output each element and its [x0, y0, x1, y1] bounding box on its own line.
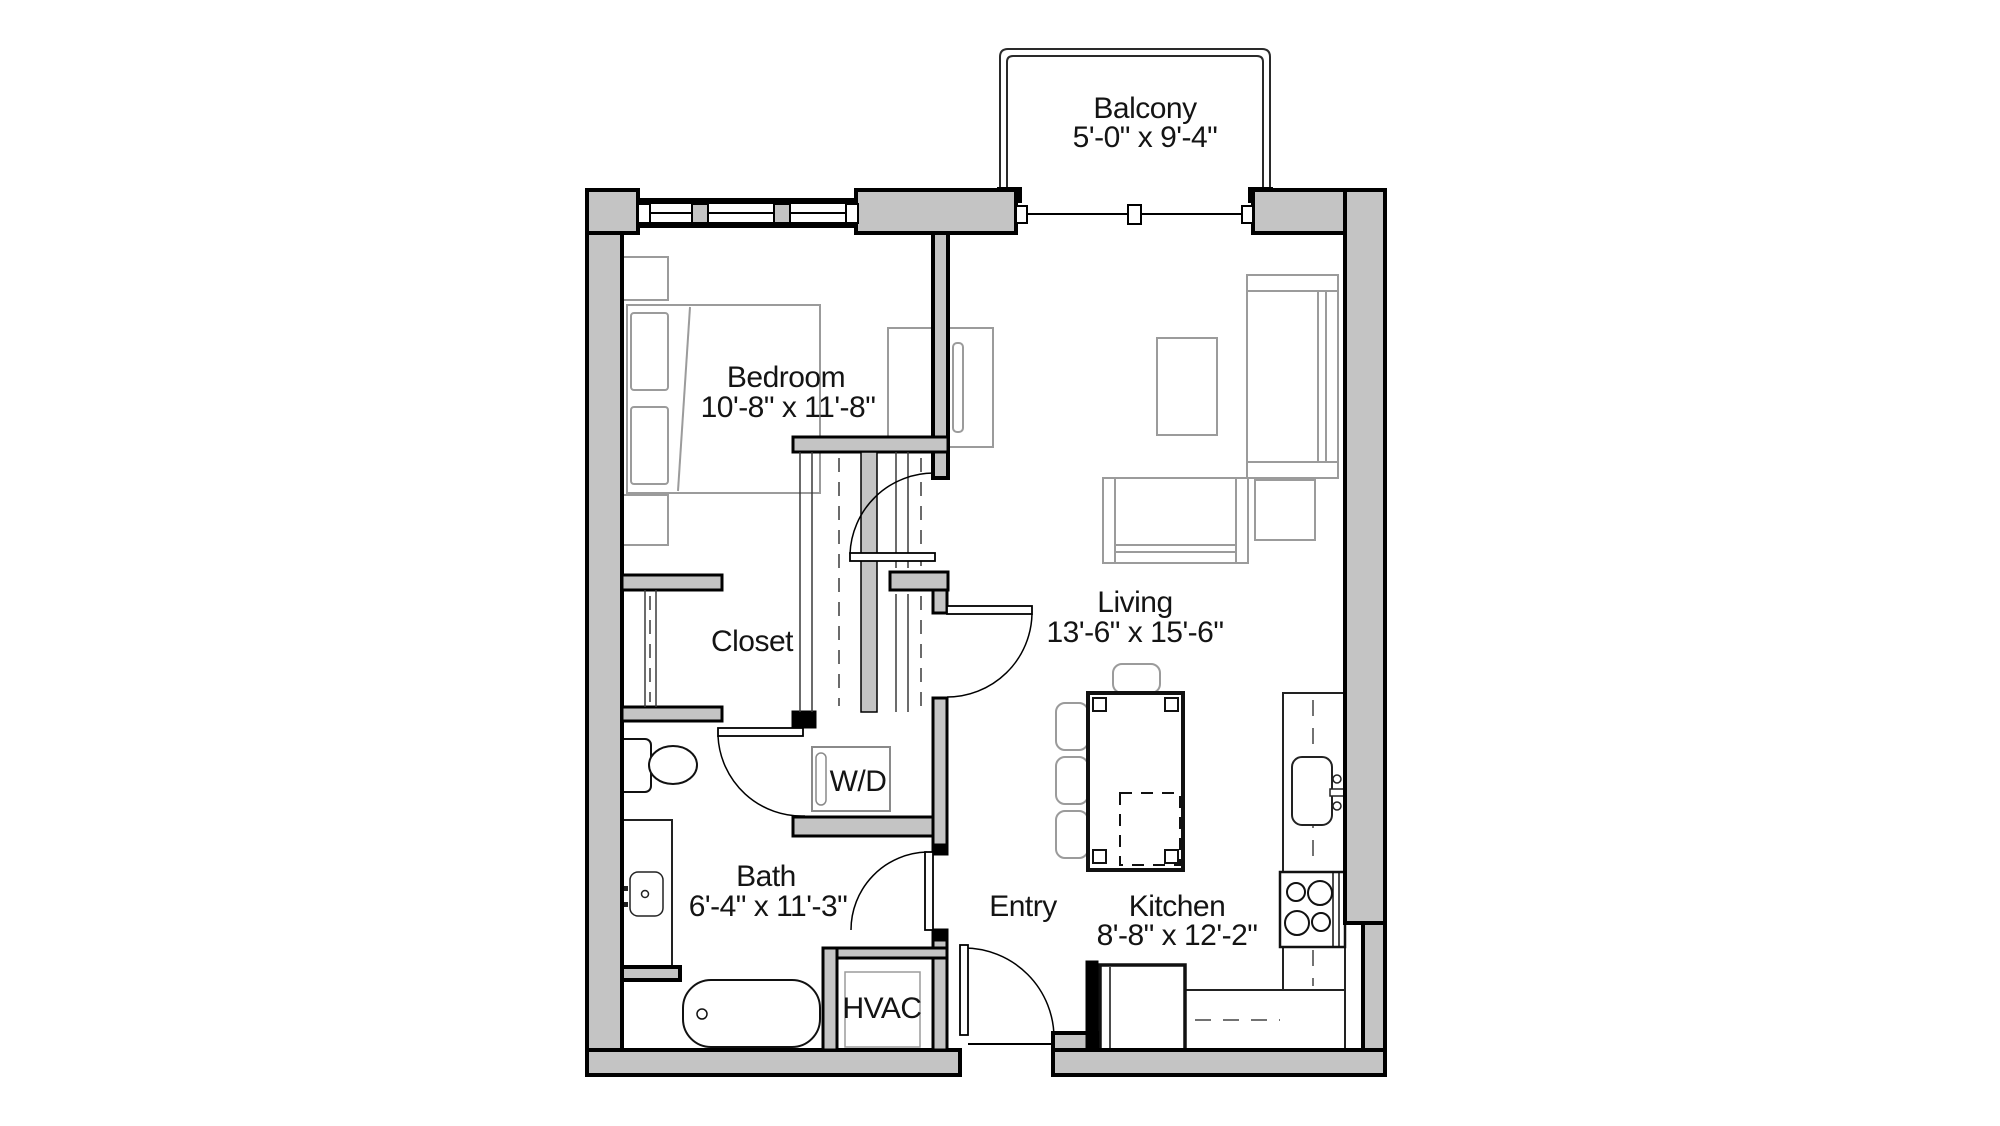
pillow [631, 407, 668, 484]
dining-chair [1056, 703, 1088, 750]
slider-jamb [1016, 206, 1027, 223]
exterior-walls [587, 190, 1385, 1075]
wall-stub [1087, 962, 1097, 1050]
room-label-entry: Entry [989, 890, 1057, 923]
door-leaf [947, 606, 1032, 614]
window-mullion [692, 204, 708, 223]
door-swing-arc [718, 736, 805, 816]
room-dims-kitchen: 8'-8" x 12'-2" [1097, 919, 1258, 952]
door-swing-arc [851, 852, 927, 930]
door-leaf [960, 945, 968, 1035]
bed-fold-line [678, 307, 690, 491]
door-leaf [850, 553, 935, 561]
interior-walls [622, 437, 1097, 1050]
dining-chair [1113, 664, 1160, 693]
kitchen-sink [1292, 757, 1332, 825]
wall [622, 967, 680, 980]
wall [622, 707, 722, 721]
wall-jamb [933, 930, 947, 940]
wall [587, 1050, 960, 1075]
door-swing-arc [947, 614, 1032, 697]
dining-table [1088, 693, 1183, 870]
wall [933, 698, 947, 845]
wall [933, 590, 947, 613]
dining-chair [1056, 811, 1088, 858]
wall [1345, 190, 1385, 923]
wall [890, 572, 948, 590]
wall [622, 575, 722, 590]
slider-jamb [1242, 206, 1253, 223]
room-label-laundry: W/D [830, 765, 887, 798]
pillow [631, 313, 668, 390]
floorplan-drawing: Balcony 5'-0" x 9'-4" Bedroom 10'-8" x 1… [0, 0, 2000, 1126]
wall [793, 817, 933, 836]
tv-icon [953, 343, 963, 432]
coffee-table [1157, 338, 1217, 435]
door-leaf [718, 728, 803, 736]
window-jamb [638, 204, 650, 223]
room-dims-bedroom: 10'-8" x 11'-8" [701, 391, 876, 424]
nightstand [622, 495, 668, 545]
toilet-bowl [649, 746, 697, 784]
wall [861, 452, 877, 712]
wall [587, 190, 638, 233]
wall-jamb [933, 845, 947, 854]
dining-set [1056, 664, 1183, 870]
vanity-sink [630, 872, 663, 916]
fridge [1100, 965, 1185, 1050]
wall [793, 437, 948, 452]
room-label-hvac: HVAC [842, 992, 921, 1025]
room-label-living: Living [1097, 586, 1172, 619]
room-label-bedroom: Bedroom [727, 361, 845, 394]
room-dims-living: 13'-6" x 15'-6" [1046, 616, 1223, 649]
media-bench [1103, 478, 1248, 563]
wall [587, 190, 622, 1075]
slider-handle [1128, 205, 1141, 224]
wall [793, 712, 815, 727]
dining-chair [1056, 757, 1088, 804]
sofa [1247, 275, 1338, 478]
bathtub [683, 980, 820, 1047]
door-swing-arc [964, 948, 1054, 1038]
balcony-sliding-door [1016, 205, 1253, 224]
wall [823, 948, 947, 958]
room-label-closet: Closet [711, 625, 794, 658]
counter-right-lower [1283, 947, 1345, 990]
window-mullion [774, 204, 790, 223]
faucet-handle [1330, 789, 1344, 796]
wall [1053, 1050, 1385, 1075]
window-jamb [846, 204, 858, 223]
bedroom-window [638, 201, 858, 225]
wall [856, 190, 1016, 233]
room-dims-balcony: 5'-0" x 9'-4" [1073, 121, 1218, 154]
door-leaf [925, 852, 933, 930]
wall [823, 948, 837, 1050]
floorplan-canvas: Balcony 5'-0" x 9'-4" Bedroom 10'-8" x 1… [0, 0, 2000, 1126]
room-label-bath: Bath [736, 860, 796, 893]
side-table [1255, 480, 1315, 540]
nightstand [622, 257, 668, 300]
room-dims-bath: 6'-4" x 11'-3" [689, 890, 848, 923]
living-furniture [1103, 275, 1338, 563]
